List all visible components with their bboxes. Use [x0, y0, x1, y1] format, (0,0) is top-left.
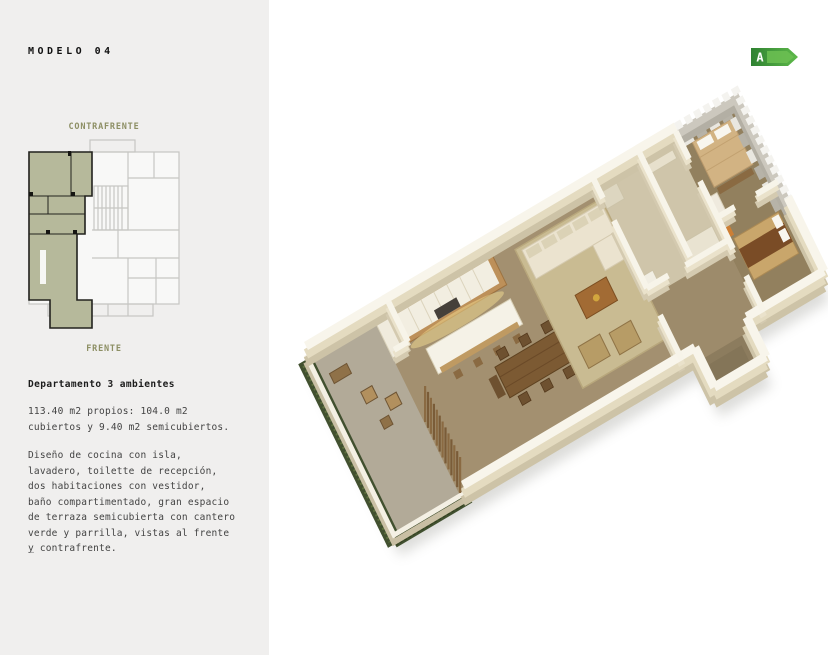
unit-location-block: CONTRAFRENTE — [28, 122, 180, 354]
sidebar: MODELO 04 CONTRAFRENTE — [0, 0, 269, 655]
unit-location-plan — [28, 138, 180, 334]
description-text: Diseño de cocina con isla, lavadero, toi… — [28, 448, 246, 557]
frente-label: FRENTE — [28, 344, 180, 354]
footer-dash: — — [28, 547, 34, 558]
unit-counter — [40, 250, 46, 284]
area-text: 113.40 m2 propios: 104.0 m2 cubiertos y … — [28, 404, 246, 435]
unit-heading: Departamento 3 ambientes — [28, 379, 175, 390]
page-title: MODELO 04 — [28, 46, 114, 57]
floorplan-3d-render — [268, 60, 828, 580]
contrafrente-label: CONTRAFRENTE — [28, 122, 180, 132]
